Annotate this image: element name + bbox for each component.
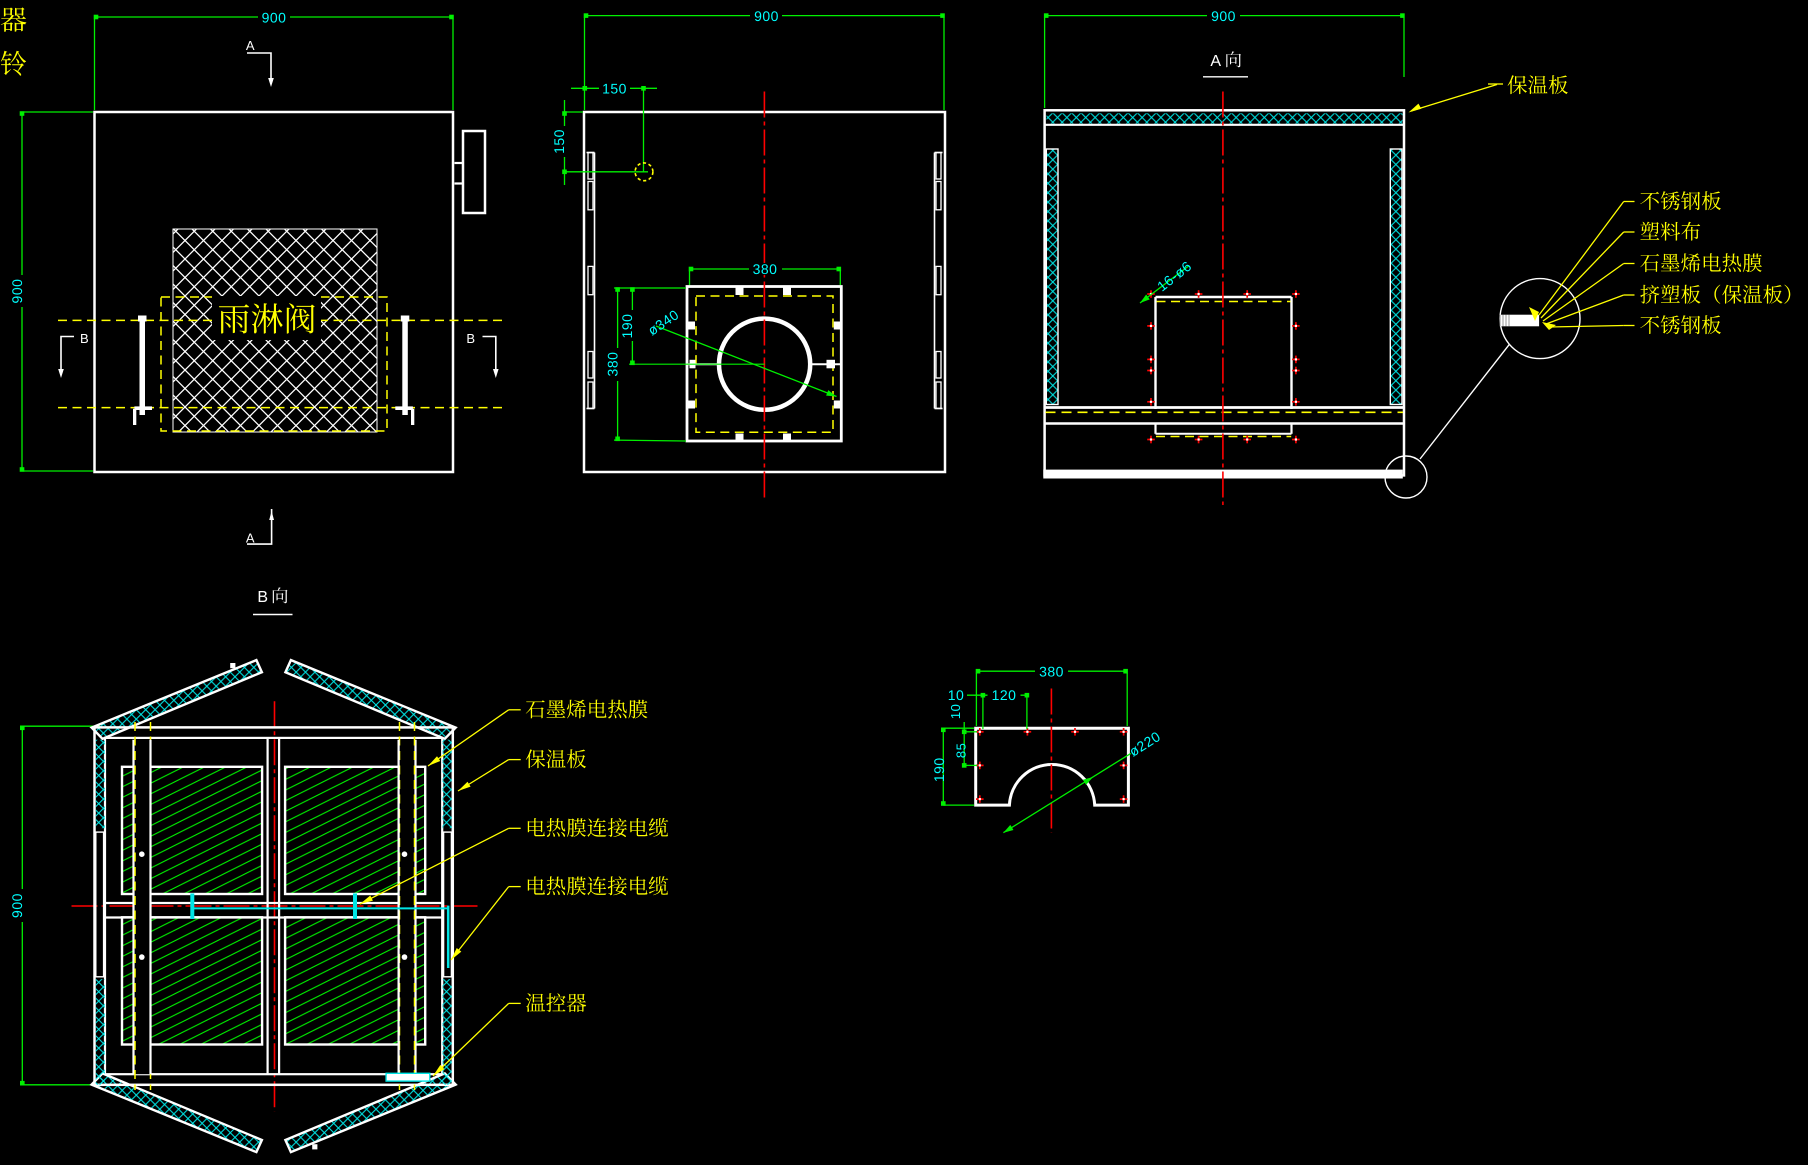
svg-text:A: A — [1210, 53, 1221, 70]
svg-text:900: 900 — [9, 279, 25, 304]
svg-text:190: 190 — [931, 757, 947, 782]
svg-text:900: 900 — [754, 8, 779, 24]
svg-text:10: 10 — [948, 704, 963, 719]
svg-text:150: 150 — [551, 129, 567, 154]
svg-text:380: 380 — [604, 352, 620, 377]
svg-text:900: 900 — [9, 893, 25, 918]
svg-text:10: 10 — [948, 687, 965, 703]
svg-text:380: 380 — [753, 261, 778, 277]
svg-text:85: 85 — [954, 743, 969, 758]
svg-text:380: 380 — [1039, 663, 1064, 679]
svg-text:900: 900 — [262, 10, 287, 26]
svg-text:B: B — [466, 331, 475, 346]
svg-text:A: A — [246, 531, 255, 546]
svg-text:120: 120 — [992, 687, 1017, 703]
svg-text:B: B — [257, 589, 268, 606]
svg-text:190: 190 — [619, 314, 635, 339]
svg-text:A: A — [246, 38, 255, 53]
svg-text:900: 900 — [1211, 8, 1236, 24]
svg-text:150: 150 — [602, 80, 627, 96]
svg-text:B: B — [80, 331, 89, 346]
